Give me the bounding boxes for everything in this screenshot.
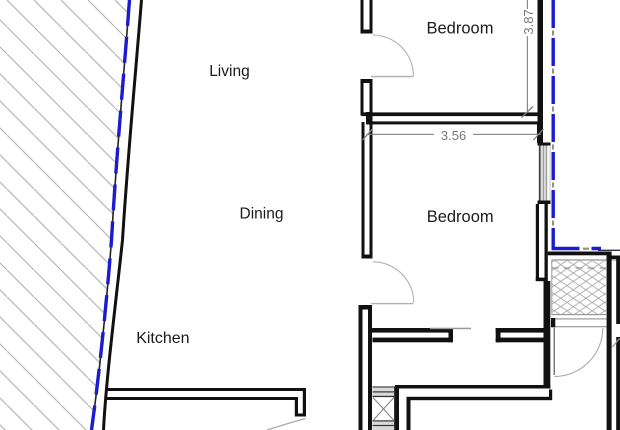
svg-text:Bedroom: Bedroom xyxy=(427,208,494,226)
svg-text:3.87: 3.87 xyxy=(521,9,536,34)
svg-text:Dining: Dining xyxy=(240,206,284,223)
svg-text:Kitchen: Kitchen xyxy=(136,330,189,347)
svg-text:Living: Living xyxy=(209,63,250,80)
svg-text:3.56: 3.56 xyxy=(441,128,466,143)
svg-text:Bedroom: Bedroom xyxy=(427,19,494,37)
